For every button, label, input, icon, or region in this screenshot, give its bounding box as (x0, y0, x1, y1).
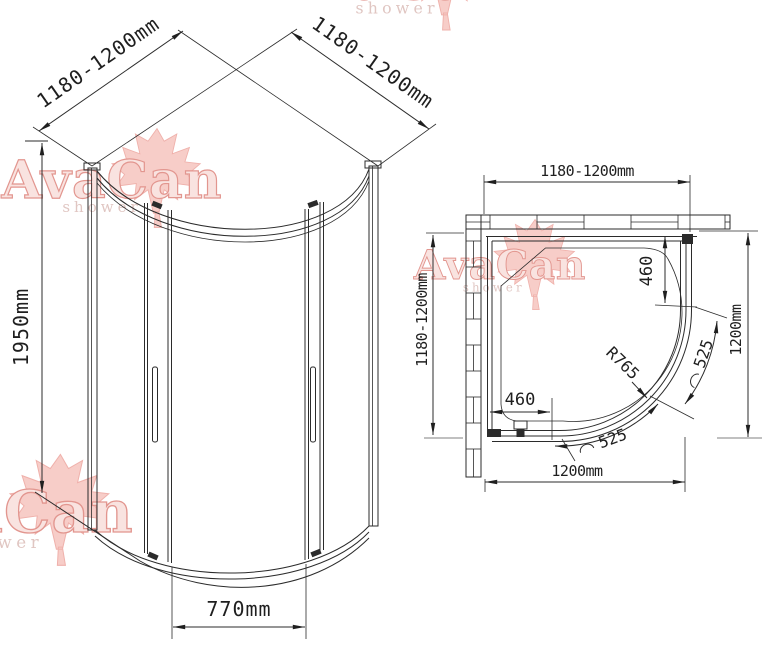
right-post-cap (365, 161, 381, 168)
dim-label: 460 (637, 256, 657, 287)
dim-label: 1200mm (551, 462, 603, 480)
door-panel-edges (145, 202, 324, 563)
dim-label: 1200mm (727, 304, 745, 356)
dim-label: 1180-1200mm (307, 11, 438, 113)
door-rollers (147, 200, 321, 561)
dim-label: 770mm (206, 597, 271, 621)
dim-label: 460 (505, 390, 536, 410)
watermark-subtitle: shower (62, 198, 141, 216)
radial-extension-lines (562, 307, 727, 461)
dim-label: 1180-1200mm (32, 11, 163, 113)
dim-label: 525 (690, 337, 717, 371)
dim-top-left-width: 1180-1200mm (32, 11, 183, 131)
dim-plan-right-depth: 1200mm (699, 231, 762, 438)
dim-label: 1180-1200mm (413, 273, 431, 367)
door-handle-right (311, 367, 316, 442)
dim-door-arc-upper: 525 (683, 321, 717, 404)
plan-view-dimensions: 1180-1200mm 1180-1200mm 1200mm 1 (413, 162, 762, 492)
wall-profile-connector-top (682, 234, 693, 244)
dim-label: 1950mm (9, 288, 33, 366)
right-post (369, 166, 378, 526)
watermark-subtitle: shower (0, 532, 43, 552)
door-handle-left (153, 367, 158, 442)
dim-door-opening: 770mm (172, 564, 306, 639)
plan-view: 1180-1200mm 1180-1200mm 1200mm 1 (413, 162, 762, 492)
watermark: AvaCan shower (0, 129, 222, 228)
dim-plan-top-width: 1180-1200mm (484, 162, 690, 232)
dim-top-right-width: 1180-1200mm (291, 11, 439, 129)
top-wall (466, 215, 730, 229)
watermark: AvaCan shower (0, 454, 134, 565)
door-handle-plan (514, 421, 527, 429)
dim-label: R765 (602, 343, 643, 383)
watermark-subtitle: shower (356, 0, 439, 18)
drawing-canvas: AvaCan shower AvaCan shower AvaCan showe… (0, 0, 773, 645)
dim-door-radius: R765 (602, 343, 647, 398)
dim-label: 1180-1200mm (540, 162, 634, 180)
wall-profile-connector-bottom (488, 429, 501, 437)
technical-drawing-page: AvaCan shower AvaCan shower AvaCan showe… (0, 0, 773, 645)
watermark-subtitle: shower (463, 281, 525, 295)
dim-side-panel-top: 460 (637, 236, 697, 307)
